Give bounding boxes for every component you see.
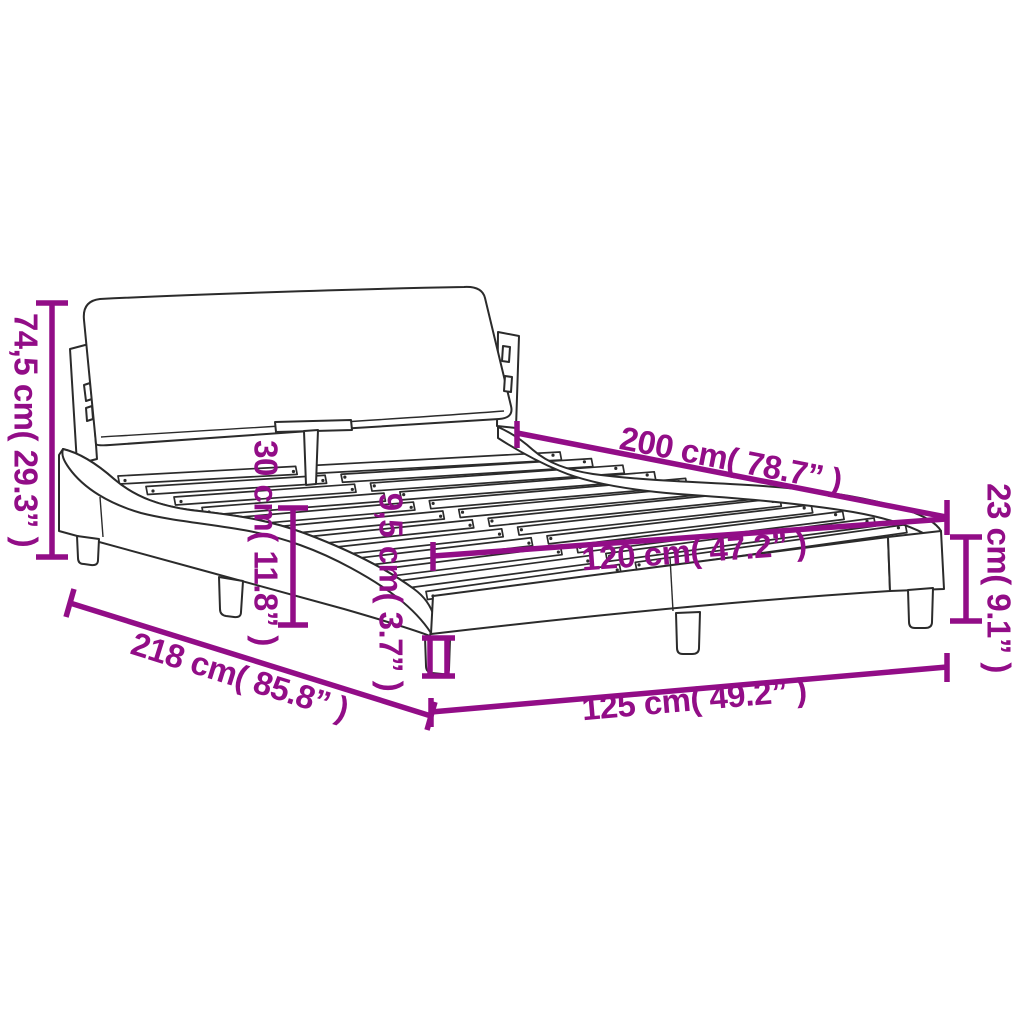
slat-screw-dot bbox=[439, 515, 442, 518]
slat-screw-dot bbox=[498, 533, 501, 536]
headboard-right-bracket-slot bbox=[504, 376, 512, 392]
total-width-label: 125 cm( 49.2” ) bbox=[580, 671, 808, 728]
slat-screw-dot bbox=[468, 524, 471, 527]
headboard-right-bracket-slot bbox=[502, 346, 510, 362]
slat-screw-dot bbox=[614, 467, 617, 470]
slat-screw-dot bbox=[373, 484, 376, 487]
leg-right-corner bbox=[908, 588, 933, 628]
slat-screw-dot bbox=[520, 528, 523, 531]
leg-mid-left bbox=[219, 577, 243, 617]
slat-screw-dot bbox=[351, 488, 354, 491]
slat-screw-dot bbox=[803, 506, 806, 509]
slat-depth-label: 9,5 cm( 3.7” ) bbox=[373, 493, 410, 691]
diagram-canvas: 74,5 cm( 29.3” ) 30 cm( 11.8” ) 9,5 cm( … bbox=[0, 0, 1024, 1024]
slat-screw-dot bbox=[834, 513, 837, 516]
total-length-label: 218 cm( 85.8” ) bbox=[127, 625, 353, 728]
slat-screw-dot bbox=[461, 511, 464, 514]
slat-screw-dot bbox=[551, 454, 554, 457]
slat-screw-dot bbox=[123, 479, 126, 482]
leg-back-left bbox=[77, 536, 99, 565]
slat-screw-dot bbox=[583, 460, 586, 463]
slat-screw-dot bbox=[646, 473, 649, 476]
headboard bbox=[70, 287, 519, 464]
headboard-height-label: 30 cm( 11.8” ) bbox=[248, 440, 285, 646]
leg-front-middle bbox=[676, 612, 700, 654]
dim-frame-height bbox=[950, 537, 982, 621]
slat-screw-dot bbox=[343, 475, 346, 478]
slat-screw-dot bbox=[292, 470, 295, 473]
slat-screw-dot bbox=[549, 537, 552, 540]
slat-screw-dot bbox=[897, 526, 900, 529]
slat-screw-dot bbox=[151, 489, 154, 492]
frame-height-label: 23 cm( 9.1” ) bbox=[981, 483, 1018, 673]
slat-screw-dot bbox=[490, 519, 493, 522]
frame-right-end bbox=[888, 531, 944, 591]
support-post bbox=[304, 430, 318, 485]
slat-screw-dot bbox=[321, 479, 324, 482]
total-height-label: 74,5 cm( 29.3” ) bbox=[8, 313, 45, 547]
bed-frame-dimension-diagram: 74,5 cm( 29.3” ) 30 cm( 11.8” ) 9,5 cm( … bbox=[0, 0, 1024, 1024]
slat-screw-dot bbox=[432, 502, 435, 505]
slat-screw-dot bbox=[557, 550, 560, 553]
slat-screw-dot bbox=[527, 542, 530, 545]
slat-screw-dot bbox=[179, 500, 182, 503]
